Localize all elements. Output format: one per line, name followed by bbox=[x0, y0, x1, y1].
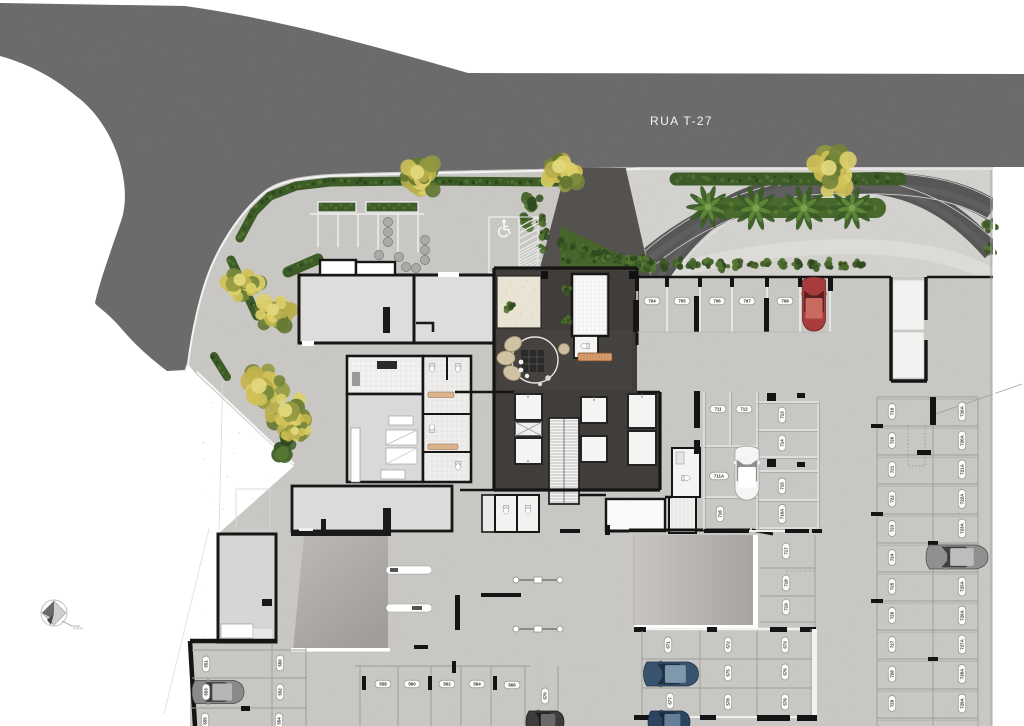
svg-text:729A: 729A bbox=[960, 697, 965, 708]
svg-text:552: 552 bbox=[278, 688, 283, 696]
svg-text:724: 724 bbox=[890, 553, 895, 561]
svg-text:712: 712 bbox=[740, 407, 748, 412]
svg-text:558: 558 bbox=[379, 682, 387, 687]
svg-text:578: 578 bbox=[726, 698, 731, 706]
svg-text:723A: 723A bbox=[960, 522, 965, 533]
svg-text:715: 715 bbox=[780, 482, 785, 490]
svg-text:726A: 726A bbox=[960, 609, 965, 620]
svg-text:716: 716 bbox=[718, 510, 723, 518]
svg-text:710: 710 bbox=[890, 407, 895, 415]
svg-text:728: 728 bbox=[890, 670, 895, 678]
svg-text:722: 722 bbox=[890, 495, 895, 503]
svg-text:553: 553 bbox=[204, 688, 209, 696]
svg-text:571: 571 bbox=[666, 641, 671, 649]
svg-text:720A: 720A bbox=[960, 434, 965, 445]
svg-text:720: 720 bbox=[890, 436, 895, 444]
svg-text:570: 570 bbox=[543, 692, 548, 700]
svg-text:576: 576 bbox=[783, 668, 788, 676]
svg-text:721A: 721A bbox=[960, 463, 965, 474]
svg-text:711A: 711A bbox=[714, 474, 725, 479]
svg-text:721: 721 bbox=[890, 465, 895, 473]
svg-text:713: 713 bbox=[780, 411, 785, 419]
svg-text:718: 718 bbox=[784, 579, 789, 587]
svg-text:727A: 727A bbox=[960, 638, 965, 649]
svg-text:NORTE: NORTE bbox=[73, 627, 83, 631]
svg-text:716A: 716A bbox=[780, 508, 785, 519]
svg-text:725: 725 bbox=[890, 582, 895, 590]
svg-text:714: 714 bbox=[780, 439, 785, 447]
svg-text:708: 708 bbox=[781, 299, 789, 304]
svg-text:719: 719 bbox=[784, 603, 789, 611]
svg-text:710A: 710A bbox=[960, 405, 965, 416]
svg-text:725A: 725A bbox=[960, 580, 965, 591]
svg-text:575: 575 bbox=[726, 669, 731, 677]
svg-text:729: 729 bbox=[890, 699, 895, 707]
svg-text:726: 726 bbox=[890, 611, 895, 619]
svg-text:717: 717 bbox=[784, 547, 789, 555]
svg-text:705: 705 bbox=[678, 299, 686, 304]
svg-text:727: 727 bbox=[890, 640, 895, 648]
svg-text:577: 577 bbox=[668, 697, 673, 705]
svg-text:706: 706 bbox=[713, 299, 721, 304]
svg-text:704: 704 bbox=[648, 299, 656, 304]
svg-text:566: 566 bbox=[508, 683, 516, 688]
svg-text:728A: 728A bbox=[960, 668, 965, 679]
svg-text:579: 579 bbox=[783, 698, 788, 706]
svg-text:564: 564 bbox=[473, 682, 481, 687]
svg-text:554: 554 bbox=[277, 717, 282, 725]
svg-text:555: 555 bbox=[203, 717, 208, 725]
svg-text:550: 550 bbox=[278, 659, 283, 667]
svg-text:562: 562 bbox=[443, 682, 451, 687]
svg-text:723: 723 bbox=[890, 524, 895, 532]
svg-text:711: 711 bbox=[714, 407, 722, 412]
svg-text:560: 560 bbox=[408, 682, 416, 687]
svg-text:722A: 722A bbox=[960, 493, 965, 504]
svg-text:RUA T-27: RUA T-27 bbox=[650, 114, 713, 128]
svg-text:707: 707 bbox=[743, 299, 751, 304]
svg-text:551: 551 bbox=[204, 660, 209, 668]
svg-text:573: 573 bbox=[783, 641, 788, 649]
svg-text:572: 572 bbox=[726, 641, 731, 649]
